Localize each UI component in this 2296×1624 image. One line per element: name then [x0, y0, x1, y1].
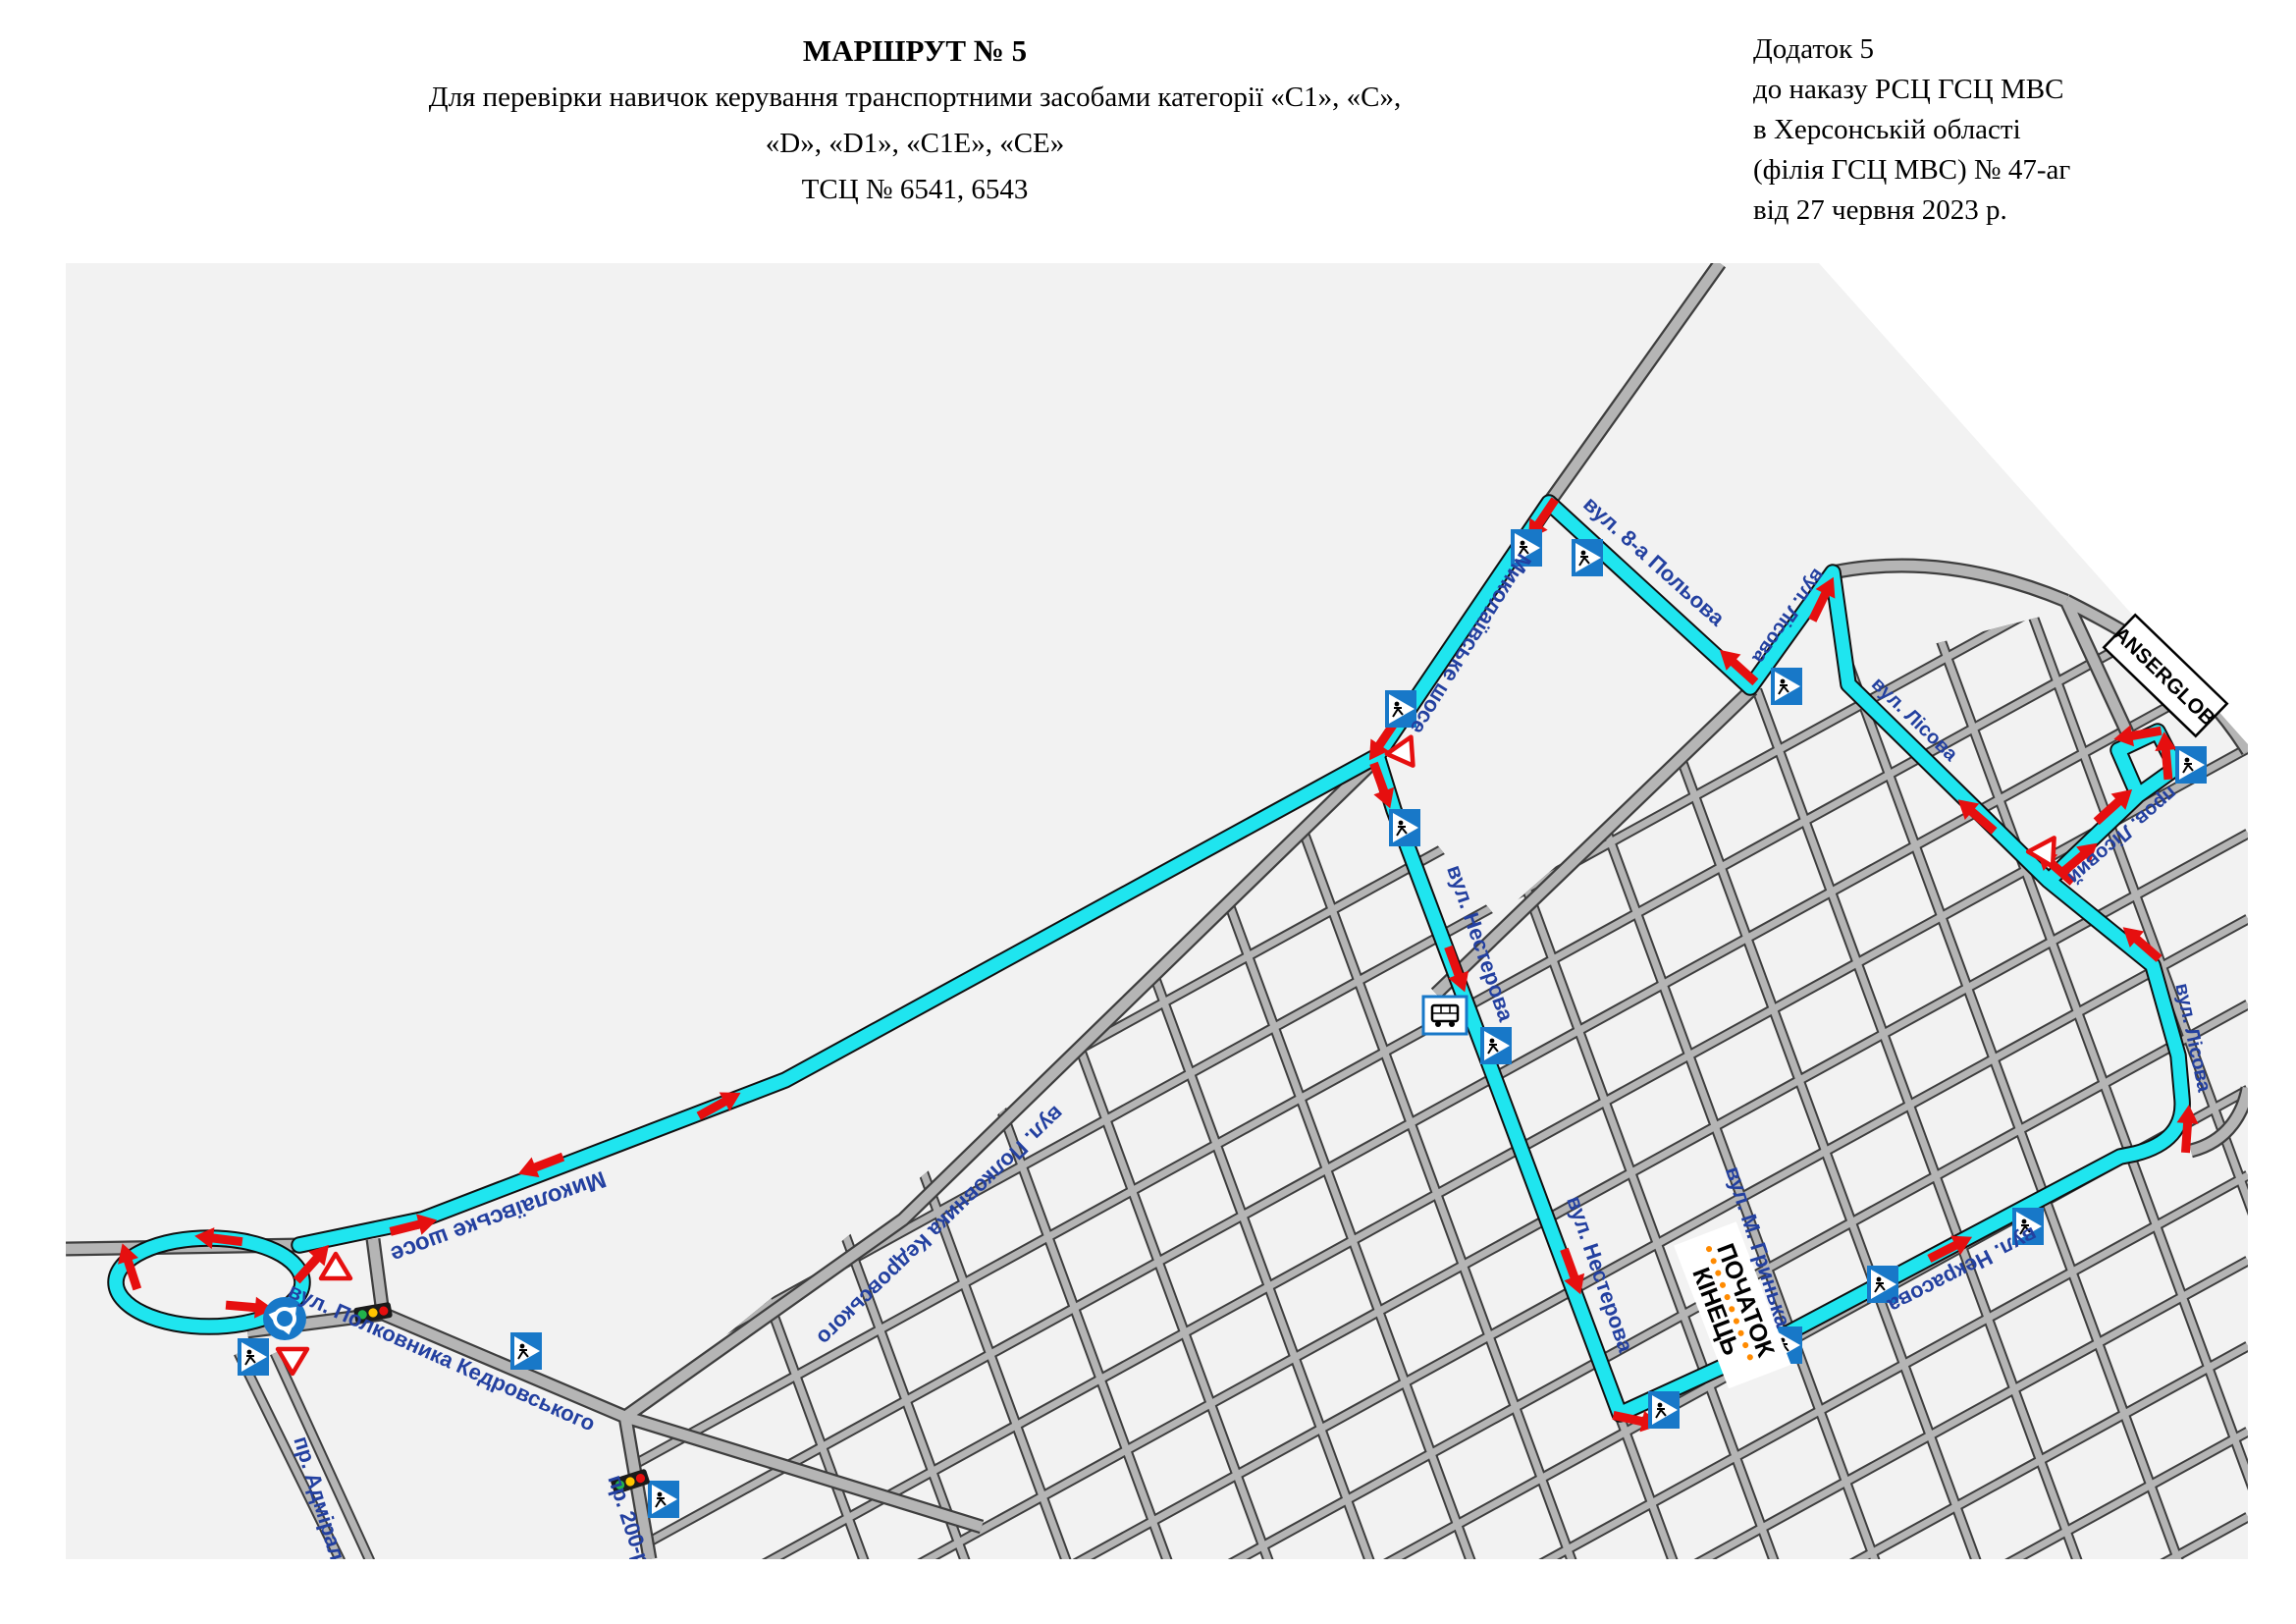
route-tsc: ТСЦ № 6541, 6543 [66, 167, 1764, 213]
annex-note: Додаток 5 до наказу РСЦ ГСЦ МВС в Херсон… [1753, 29, 2288, 231]
route-header: МАРШРУТ № 5 Для перевірки навичок керува… [66, 27, 1764, 213]
route-map-svg: ПОЧАТОК КІНЕЦЬ ANSERGLOB Миколаївське шо… [66, 263, 2248, 1559]
bus-stop-icon [1423, 997, 1467, 1034]
route-subtitle-2: «D», «D1», «С1Е», «СЕ» [66, 121, 1764, 167]
annex-line-4: (філія ГСЦ МВС) № 47-аг [1753, 150, 2288, 190]
route-subtitle-1: Для перевірки навичок керування транспор… [66, 75, 1764, 121]
route-title: МАРШРУТ № 5 [66, 27, 1764, 75]
annex-line-5: від 27 червня 2023 р. [1753, 190, 2288, 231]
annex-line-1: Додаток 5 [1753, 29, 2288, 70]
route-map: ПОЧАТОК КІНЕЦЬ ANSERGLOB Миколаївське шо… [66, 263, 2248, 1559]
annex-line-3: в Херсонській області [1753, 110, 2288, 150]
map-background [66, 263, 2248, 1559]
annex-line-2: до наказу РСЦ ГСЦ МВС [1753, 70, 2288, 110]
